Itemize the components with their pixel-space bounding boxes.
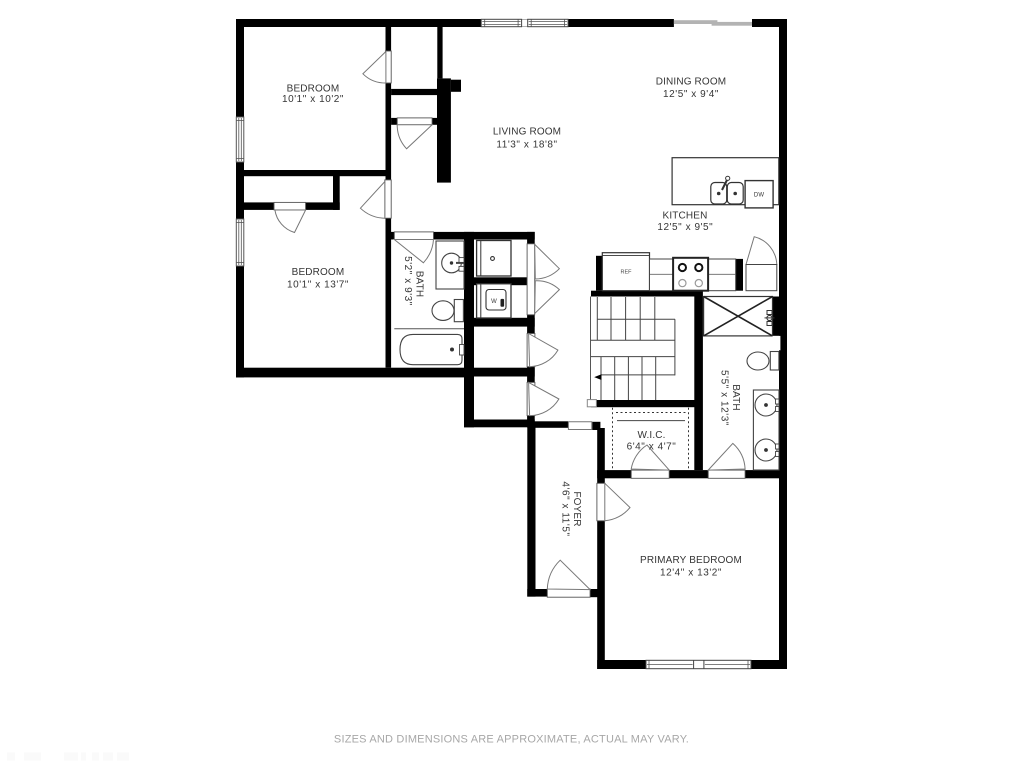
svg-text:10'1" x 13'7": 10'1" x 13'7" [287,280,349,291]
svg-text:12'5" x 9'4": 12'5" x 9'4" [663,89,719,100]
svg-text:SIZES AND DIMENSIONS ARE APPRO: SIZES AND DIMENSIONS ARE APPROXIMATE, AC… [334,734,689,746]
svg-text:REF: REF [621,270,633,276]
svg-text:BATH: BATH [730,384,741,411]
svg-text:11'3" x 18'8": 11'3" x 18'8" [496,140,557,151]
svg-text:FOYER: FOYER [571,491,582,526]
svg-text:BEDROOM: BEDROOM [292,267,345,278]
svg-text:W.I.C.: W.I.C. [637,430,665,441]
svg-text:6'4" x 4'7": 6'4" x 4'7" [627,442,677,453]
svg-text:BATH: BATH [413,271,424,298]
svg-text:5'5" x 12'3": 5'5" x 12'3" [719,370,730,426]
svg-text:4'6" x 11'5": 4'6" x 11'5" [560,481,571,536]
svg-text:DINING ROOM: DINING ROOM [656,77,727,88]
svg-text:12'4" x 13'2": 12'4" x 13'2" [660,568,722,579]
svg-text:BEDROOM: BEDROOM [287,84,340,95]
svg-text:DW: DW [754,193,764,199]
svg-text:LIVING ROOM: LIVING ROOM [493,127,561,138]
svg-text:12'5" x 9'5": 12'5" x 9'5" [657,222,713,233]
svg-text:KITCHEN: KITCHEN [663,211,708,222]
svg-text:W: W [491,299,497,305]
svg-text:10'1" x 10'2": 10'1" x 10'2" [282,94,344,105]
svg-text:5'2" x 9'3": 5'2" x 9'3" [402,256,413,306]
svg-text:PRIMARY BEDROOM: PRIMARY BEDROOM [640,555,742,566]
